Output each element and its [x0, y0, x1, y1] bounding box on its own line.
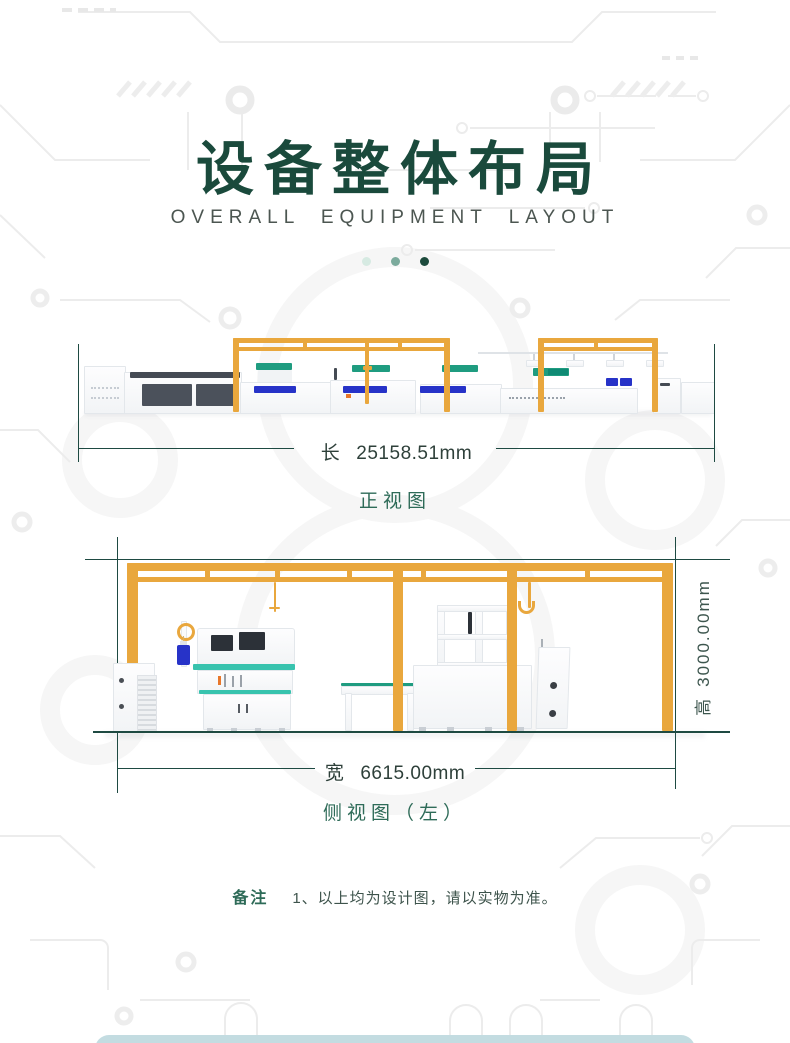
- machine-dark-panel: [196, 384, 236, 406]
- hanging-fixture: [606, 360, 624, 367]
- handle: [246, 704, 248, 713]
- machine-cabinet: [681, 382, 715, 414]
- pagination-dots: [0, 257, 790, 266]
- cabinet-detail: [91, 387, 119, 389]
- height-label: 高: [694, 696, 713, 715]
- length-value: 25158.51mm: [356, 443, 472, 464]
- extension-line-right: [675, 537, 676, 789]
- blue-module: [254, 386, 296, 393]
- length-dimension: 长25158.51mm: [78, 438, 715, 465]
- cabinet-knob: [549, 710, 556, 717]
- gantry-stub: [398, 338, 402, 351]
- hook-ring: [177, 623, 195, 641]
- gantry-beam: [538, 347, 658, 351]
- blue-module: [420, 386, 466, 393]
- gantry-beam: [233, 347, 450, 351]
- cabinet-detail: [91, 397, 119, 399]
- next-section-peek: [95, 1035, 695, 1043]
- width-label: 宽: [325, 763, 345, 784]
- machine-cabinet: [84, 366, 126, 414]
- orange-indicator: [346, 394, 351, 398]
- gantry-hanger-rod: [367, 351, 369, 367]
- gantry-post: [365, 338, 369, 404]
- screen: [211, 635, 233, 651]
- pagination-dot: [362, 257, 371, 266]
- width-dimension: 宽6615.00mm: [85, 758, 705, 785]
- station-lower-cabinet: [203, 694, 291, 730]
- gantry-stub: [585, 563, 590, 582]
- page: 设备整体布局 OVERALL EQUIPMENT LAYOUT: [0, 0, 790, 1043]
- extension-line-top: [85, 559, 730, 560]
- page-title: 设备整体布局: [0, 122, 790, 206]
- machine-pole: [334, 368, 337, 380]
- vent-grille: [137, 675, 157, 731]
- conveyor-belt: [256, 363, 292, 370]
- note-row: 备注 1、以上均为设计图，请以实物为准。: [0, 884, 790, 908]
- gantry-beam: [233, 338, 450, 343]
- gantry-post: [507, 563, 517, 731]
- gantry-stub: [421, 563, 426, 582]
- gantry-hook: [518, 601, 535, 614]
- gantry-stub: [594, 338, 598, 351]
- gantry-post: [652, 338, 658, 412]
- instrument: [232, 676, 234, 687]
- machine-tunnel: [500, 388, 638, 414]
- pagination-dot: [391, 257, 400, 266]
- blue-module: [620, 378, 632, 386]
- note-text: 1、以上均为设计图，请以实物为准。: [292, 887, 557, 908]
- cabinet-knob: [550, 682, 557, 689]
- height-value: 3000.00mm: [694, 579, 713, 687]
- handle: [238, 704, 240, 713]
- height-dimension: 高3000.00mm: [677, 563, 725, 731]
- cabinet-detail: [660, 383, 670, 386]
- gantry-post: [393, 563, 403, 731]
- front-view-caption: 正视图: [0, 486, 790, 513]
- side-view-diagram: 宽6615.00mm 高3000.00mm: [85, 535, 740, 800]
- machine-top-strip: [130, 372, 240, 378]
- screen: [239, 632, 265, 650]
- cabinet-knob: [119, 678, 124, 683]
- width-value: 6615.00mm: [360, 763, 465, 784]
- gantry-post: [662, 563, 673, 731]
- ground-shadow: [105, 733, 705, 739]
- machine-dark-panel: [142, 384, 192, 406]
- belt-stand: [258, 370, 292, 382]
- instrument: [240, 675, 242, 687]
- gantry-hanger-tip: [269, 607, 280, 609]
- cabinet-knob: [119, 704, 124, 709]
- gantry-beam: [538, 338, 658, 343]
- gantry-stub: [205, 563, 210, 582]
- front-view-diagram: 长25158.51mm: [78, 336, 715, 468]
- conveyor-belt-dark: [548, 369, 568, 375]
- instrument-orange: [218, 676, 221, 685]
- side-view-caption: 侧视图（左）: [0, 798, 790, 825]
- instrument: [224, 674, 226, 687]
- note-label: 备注: [232, 884, 268, 908]
- gantry-stub: [303, 338, 307, 351]
- standing-cabinet: [536, 647, 571, 729]
- gantry-hanger-tip: [363, 366, 372, 370]
- gantry-post: [233, 338, 239, 412]
- rack-beam: [437, 605, 514, 612]
- hanging-fixture: [566, 360, 584, 367]
- tunnel-detail: [509, 397, 565, 399]
- blue-bottle: [177, 645, 190, 665]
- ground-line: [93, 731, 730, 733]
- gantry-post: [444, 338, 450, 412]
- gantry-stub: [275, 563, 280, 582]
- height-dimension-text: 高3000.00mm: [689, 579, 714, 716]
- rack-dark-bar: [468, 612, 472, 634]
- rack-beam: [437, 634, 514, 640]
- gantry-post: [538, 338, 544, 412]
- blue-module: [606, 378, 618, 386]
- pagination-dot: [420, 257, 429, 266]
- length-label: 长: [321, 443, 341, 464]
- table-leg: [345, 693, 352, 731]
- page-subtitle: OVERALL EQUIPMENT LAYOUT: [0, 207, 790, 229]
- gantry-stub: [347, 563, 352, 582]
